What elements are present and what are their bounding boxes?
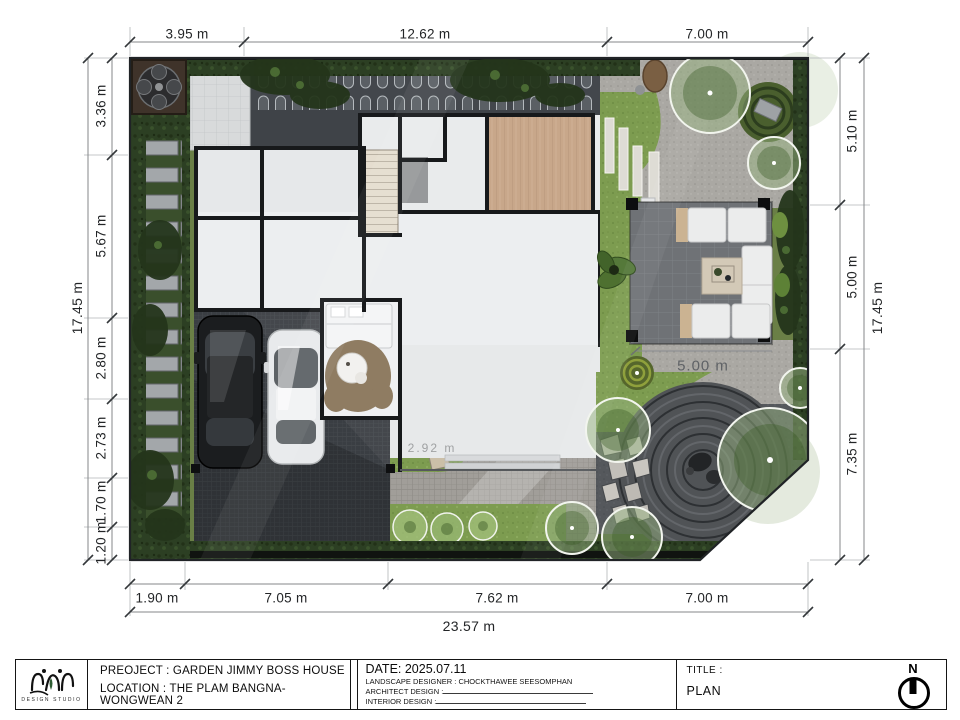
dim-bottom-1: 1.90 m: [135, 591, 178, 606]
tree: [780, 368, 820, 408]
dim-left-3: 2.80 m: [94, 336, 109, 379]
logo-caption: DESIGN STUDIO: [21, 697, 81, 703]
dim-right-total: 17.45 m: [869, 282, 885, 335]
design-studio-logo-icon: [26, 666, 78, 696]
dim-bottom-4: 7.00 m: [685, 591, 728, 606]
titleblock-divider-double: [350, 660, 358, 709]
dim-faint-watermark: 2.92 m: [408, 441, 457, 455]
dim-left-2: 5.67 m: [94, 214, 109, 257]
dim-left-4: 2.73 m: [94, 416, 109, 459]
north-bar: [910, 678, 917, 694]
tree: [546, 502, 598, 554]
location-label: LOCATION : THE PLAM BANGNA-WONGWEAN 2: [100, 683, 350, 707]
architect-blank-line: [443, 687, 593, 694]
dim-terrace-width: 5.00 m: [677, 358, 729, 375]
dim-left-1: 3.36 m: [94, 84, 109, 127]
interior-blank-line: [436, 697, 586, 704]
dim-bottom-2: 7.05 m: [264, 591, 307, 606]
dim-top-1: 3.95 m: [165, 27, 208, 42]
dim-top-3: 7.00 m: [685, 27, 728, 42]
dim-right-3: 7.35 m: [845, 432, 860, 475]
architect-design-label: ARCHITECT DESIGN :: [366, 687, 668, 696]
dim-left-6: 1.20 m: [94, 521, 109, 564]
tree: [586, 398, 650, 462]
tree: [670, 53, 750, 133]
landscape-designer-label: LANDSCAPE DESIGNER : CHOCKTHAWEE SEESOMP…: [366, 677, 668, 686]
date-label: DATE: 2025.07.11: [366, 662, 668, 676]
water-feature: [132, 60, 186, 114]
landscape-plan-sheet: 3.95 m 12.62 m 7.00 m 3.36 m 5.67 m 2.80…: [0, 0, 960, 720]
interior-design-label: INTERIOR DESIGN :: [366, 697, 668, 706]
title-block: DESIGN STUDIO PREOJECT : GARDEN JIMMY BO…: [15, 659, 947, 710]
tree: [602, 507, 662, 567]
dim-bottom-3: 7.62 m: [475, 591, 518, 606]
dim-left-total: 17.45 m: [69, 282, 85, 335]
site-plan-drawing: [0, 0, 960, 720]
dim-top-2: 12.62 m: [400, 27, 451, 42]
designer-info-cell: DATE: 2025.07.11 LANDSCAPE DESIGNER : CH…: [358, 660, 676, 709]
round-bushes: [393, 510, 497, 545]
dim-left-5: 1.70 m: [94, 480, 109, 523]
dim-right-2: 5.00 m: [845, 255, 860, 298]
north-arrow-icon: N: [896, 664, 930, 708]
dim-right-1: 5.10 m: [845, 109, 860, 152]
north-letter: N: [908, 661, 917, 676]
tree: [748, 137, 800, 189]
project-label: PREOJECT : GARDEN JIMMY BOSS HOUSE: [100, 665, 350, 677]
project-info-cell: PREOJECT : GARDEN JIMMY BOSS HOUSE LOCAT…: [88, 660, 350, 709]
studio-logo: DESIGN STUDIO: [16, 660, 88, 709]
dim-bottom-total: 23.57 m: [443, 618, 496, 634]
wood-floor-room: [487, 117, 593, 212]
sheet-title-cell: TITLE : PLAN N: [677, 660, 947, 709]
